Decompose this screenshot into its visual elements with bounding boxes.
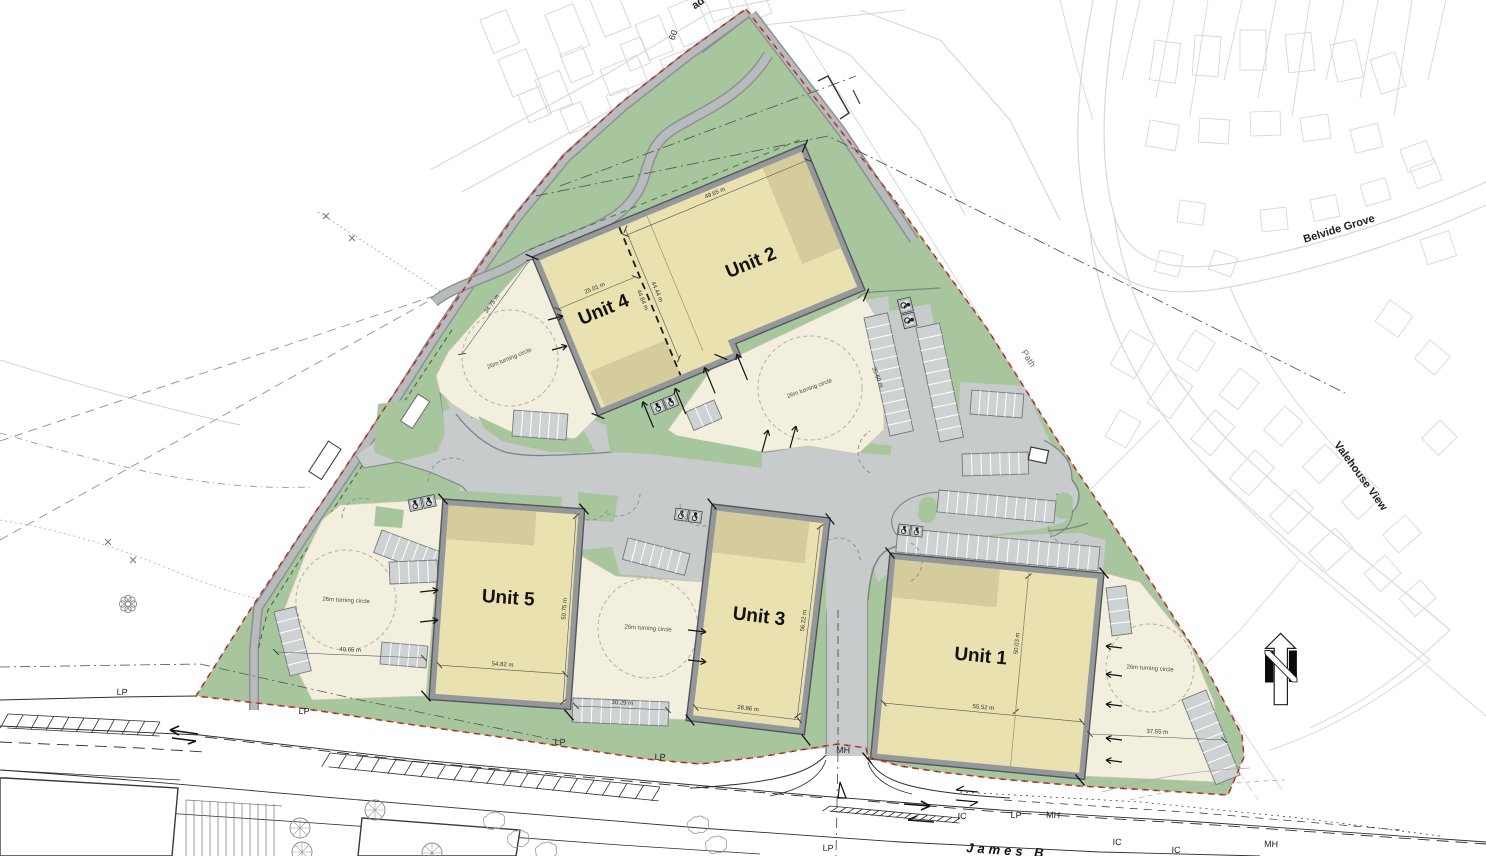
svg-text:LP: LP: [116, 687, 127, 697]
svg-text:MH: MH: [1046, 810, 1060, 820]
svg-text:IC: IC: [1112, 837, 1122, 847]
svg-text:LP: LP: [822, 843, 833, 853]
svg-text:30.29 m: 30.29 m: [611, 700, 633, 707]
svg-text:Unit 5: Unit 5: [481, 586, 536, 611]
svg-text:37.55 m: 37.55 m: [1146, 729, 1168, 736]
svg-text:40.65 m: 40.65 m: [339, 647, 361, 654]
svg-text:LP: LP: [1010, 810, 1021, 820]
svg-text:IC: IC: [1171, 845, 1181, 855]
svg-text:LP: LP: [298, 706, 309, 716]
svg-text:LP: LP: [654, 752, 665, 762]
svg-text:LP: LP: [554, 737, 565, 747]
svg-text:MH: MH: [836, 745, 850, 755]
svg-text:IC: IC: [957, 811, 967, 821]
svg-text:MH: MH: [1264, 839, 1278, 849]
